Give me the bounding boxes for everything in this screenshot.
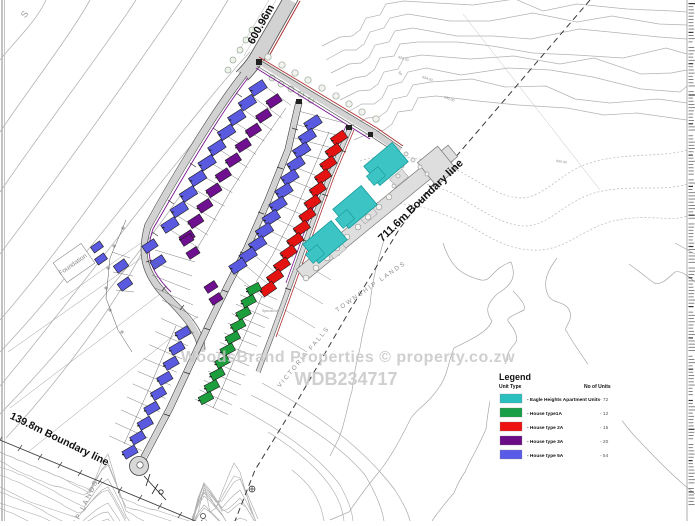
svg-text:Special lot: Special lot [262,309,278,313]
svg-text:No of Units: No of Units [584,384,611,390]
svg-text:- 12: - 12 [600,411,609,417]
svg-text:- 20: - 20 [600,439,609,445]
svg-text:WDB234717: WDB234717 [294,369,397,389]
svg-text:- 72: - 72 [600,397,609,403]
svg-text:- House type 5A: - House type 5A [527,453,564,459]
svg-text:- House type 2A: - House type 2A [527,425,564,431]
svg-text:- House type1A: - House type1A [527,411,562,417]
svg-text:- House type 3A: - House type 3A [527,439,564,445]
svg-text:- Eagle Heights Apartment Unit: - Eagle Heights Apartment Units [527,397,600,403]
svg-text:- 15: - 15 [600,425,609,431]
svg-text:- 54: - 54 [600,453,609,459]
svg-text:Unit Type: Unit Type [499,384,522,390]
svg-text:Legend: Legend [499,372,531,382]
svg-text:WoodsBrand Properties © prop: WoodsBrand Properties © property.co.zw [181,349,515,366]
